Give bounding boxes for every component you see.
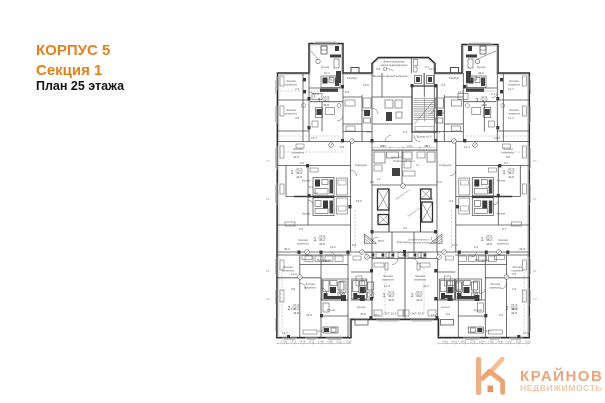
svg-text:2.3: 2.3 (512, 287, 517, 291)
svg-text:3.8: 3.8 (295, 116, 300, 120)
svg-text:комната: комната (502, 150, 514, 154)
svg-text:44.8: 44.8 (323, 103, 329, 107)
svg-text:Лифтовой холл: Лифтовой холл (393, 159, 415, 163)
svg-text:13.2: 13.2 (330, 245, 336, 249)
svg-text:2264: 2264 (479, 340, 485, 344)
svg-text:1882: 1882 (460, 340, 466, 344)
svg-text:12.7: 12.7 (282, 331, 288, 335)
svg-text:2.1: 2.1 (533, 197, 537, 201)
svg-text:1611: 1611 (309, 340, 315, 344)
svg-text:Тамбур: Тамбур (347, 76, 358, 80)
svg-text:15.6: 15.6 (363, 83, 369, 87)
svg-text:5.2: 5.2 (309, 185, 314, 189)
svg-text:15.6: 15.6 (313, 92, 319, 96)
svg-text:2: 2 (288, 306, 291, 312)
svg-text:44.8: 44.8 (306, 313, 312, 317)
svg-text:1500: 1500 (442, 340, 448, 344)
svg-text:12.7: 12.7 (486, 329, 492, 333)
svg-text:3: 3 (318, 98, 321, 104)
svg-text:11.4: 11.4 (464, 145, 470, 149)
svg-text:44.8: 44.8 (296, 175, 302, 179)
svg-text:1337: 1337 (290, 340, 296, 344)
svg-text:11.4: 11.4 (458, 90, 464, 94)
svg-text:3.3: 3.3 (491, 92, 496, 96)
svg-text:комната: комната (304, 285, 316, 289)
svg-text:Кухня: Кухня (302, 212, 311, 216)
svg-text:МОП: МОП (378, 239, 384, 243)
svg-text:44.8: 44.8 (511, 311, 517, 315)
svg-text:3.8: 3.8 (512, 272, 517, 276)
svg-text:2.0: 2.0 (403, 226, 408, 230)
svg-text:17.3: 17.3 (508, 116, 514, 120)
svg-text:2.3: 2.3 (402, 253, 407, 257)
svg-text:комната: комната (285, 82, 297, 86)
svg-text:3.8: 3.8 (291, 287, 296, 291)
svg-text:1: 1 (314, 237, 317, 243)
svg-text:3.1: 3.1 (533, 269, 537, 273)
svg-text:Коридор: Коридор (355, 163, 367, 167)
svg-text:11.4: 11.4 (452, 243, 458, 247)
svg-text:шахта дымоудаления: шахта дымоудаления (380, 64, 408, 67)
svg-text:СУ: СУ (314, 191, 318, 195)
svg-text:Выход +0.0: Выход +0.0 (417, 135, 432, 139)
svg-text:15.6: 15.6 (356, 199, 362, 203)
svg-text:12.7: 12.7 (311, 136, 317, 140)
svg-text:1885: 1885 (327, 340, 333, 344)
svg-text:ОКТ 20.8: ОКТ 20.8 (384, 312, 397, 316)
svg-text:10.1: 10.1 (324, 71, 330, 75)
svg-text:44.8: 44.8 (416, 298, 422, 302)
svg-text:10.1: 10.1 (523, 331, 529, 335)
svg-text:1: 1 (503, 170, 506, 176)
svg-text:1619: 1619 (525, 340, 531, 344)
svg-text:Кухня: Кухня (357, 305, 366, 309)
svg-text:1474: 1474 (299, 340, 305, 344)
svg-text:44.8: 44.8 (293, 155, 299, 159)
svg-text:5.2: 5.2 (499, 313, 504, 317)
svg-text:15.6: 15.6 (367, 130, 373, 134)
svg-text:36.2: 36.2 (374, 313, 380, 317)
svg-text:3.3: 3.3 (436, 130, 441, 134)
svg-text:13.2: 13.2 (323, 259, 329, 263)
svg-text:3.8: 3.8 (376, 67, 381, 71)
svg-text:Кухня: Кухня (497, 212, 506, 216)
svg-text:44.8: 44.8 (508, 175, 514, 179)
svg-text:Внеквартирный коридор: Внеквартирный коридор (372, 74, 407, 78)
svg-text:3.1: 3.1 (266, 269, 270, 273)
svg-text:13.2: 13.2 (436, 180, 442, 184)
svg-text:2.3: 2.3 (266, 297, 270, 301)
svg-text:11.4: 11.4 (486, 185, 492, 189)
svg-text:1259: 1259 (345, 340, 351, 344)
svg-text:1691: 1691 (451, 340, 457, 344)
svg-text:комната: комната (285, 111, 297, 115)
svg-text:Кухня: Кухня (441, 305, 450, 309)
svg-text:13.2: 13.2 (291, 272, 297, 276)
svg-text:Кухня: Кухня (474, 308, 483, 312)
svg-text:10.1: 10.1 (429, 67, 435, 71)
svg-text:Кухня: Кухня (477, 65, 486, 69)
svg-text:44.8: 44.8 (319, 242, 325, 246)
svg-text:комната: комната (382, 277, 394, 281)
svg-text:2228: 2228 (516, 340, 522, 344)
svg-text:1: 1 (411, 293, 414, 299)
svg-text:Кухня: Кухня (497, 179, 506, 183)
svg-text:комната: комната (508, 82, 520, 86)
svg-text:2100: 2100 (407, 145, 413, 148)
svg-text:1655: 1655 (488, 340, 494, 344)
svg-text:8.9: 8.9 (340, 145, 345, 149)
svg-text:1200: 1200 (281, 340, 287, 344)
svg-text:СУ: СУ (488, 191, 492, 195)
svg-text:2073: 2073 (470, 340, 476, 344)
svg-text:44.8: 44.8 (293, 311, 299, 315)
svg-text:1: 1 (383, 293, 386, 299)
svg-text:3.3: 3.3 (449, 199, 454, 203)
svg-text:12.7: 12.7 (508, 87, 514, 91)
svg-text:2037: 2037 (506, 340, 512, 344)
svg-text:44.8: 44.8 (388, 298, 394, 302)
svg-text:3.7: 3.7 (266, 159, 270, 163)
svg-text:17.3: 17.3 (384, 284, 390, 288)
svg-text:2.3: 2.3 (318, 329, 323, 333)
svg-text:Кухня: Кухня (327, 308, 336, 312)
svg-text:9.7: 9.7 (504, 161, 509, 165)
svg-text:3: 3 (476, 98, 479, 104)
svg-text:Коридор: Коридор (397, 240, 409, 244)
svg-text:2.0: 2.0 (300, 161, 305, 165)
svg-text:2.0: 2.0 (299, 227, 304, 231)
svg-text:Кухня: Кухня (302, 179, 311, 183)
svg-text:2022: 2022 (336, 340, 342, 344)
svg-text:9.7: 9.7 (426, 144, 431, 148)
svg-text:Тамбур: Тамбур (449, 76, 460, 80)
svg-text:17.3: 17.3 (431, 313, 437, 317)
svg-text:Коридор: Коридор (439, 163, 451, 167)
svg-text:6.1: 6.1 (474, 245, 479, 249)
svg-text:5.2: 5.2 (446, 312, 451, 316)
svg-text:2.3: 2.3 (533, 297, 537, 301)
svg-text:комната: комната (489, 285, 501, 289)
svg-text:36.2: 36.2 (284, 247, 290, 251)
svg-text:9.7: 9.7 (502, 227, 507, 231)
svg-text:комната: комната (508, 111, 520, 115)
svg-text:2: 2 (506, 306, 509, 312)
svg-text:44.8: 44.8 (486, 242, 492, 246)
svg-text:1: 1 (481, 237, 484, 243)
svg-text:комната: комната (497, 241, 509, 245)
svg-text:1748: 1748 (318, 340, 324, 344)
svg-text:17.3: 17.3 (494, 136, 500, 140)
svg-text:44.8: 44.8 (360, 312, 366, 316)
svg-text:2.1: 2.1 (266, 197, 270, 201)
svg-text:5.2: 5.2 (403, 130, 408, 134)
svg-text:9.7: 9.7 (370, 180, 375, 184)
svg-text:2.3: 2.3 (295, 87, 300, 91)
svg-text:8.9: 8.9 (352, 243, 357, 247)
svg-text:1: 1 (291, 170, 294, 176)
svg-text:Кухня: Кухня (321, 65, 330, 69)
svg-text:3.7: 3.7 (533, 159, 537, 163)
svg-text:комната: комната (297, 241, 309, 245)
svg-text:2.0: 2.0 (380, 144, 385, 148)
svg-text:комната: комната (292, 150, 304, 154)
svg-text:8.9: 8.9 (506, 155, 511, 159)
svg-text:комната: комната (414, 277, 426, 281)
svg-text:6.1: 6.1 (482, 259, 487, 263)
svg-text:лестничная клетка: лестничная клетка (409, 241, 430, 244)
svg-text:44.8: 44.8 (519, 247, 525, 251)
svg-text:44.8: 44.8 (481, 103, 487, 107)
svg-text:3.3: 3.3 (441, 83, 446, 87)
svg-text:ОКТ 20.8: ОКТ 20.8 (411, 312, 424, 316)
svg-text:8.9: 8.9 (345, 90, 350, 94)
svg-text:36.2: 36.2 (423, 284, 429, 288)
svg-text:1846: 1846 (497, 340, 503, 344)
svg-text:36.2: 36.2 (478, 71, 484, 75)
